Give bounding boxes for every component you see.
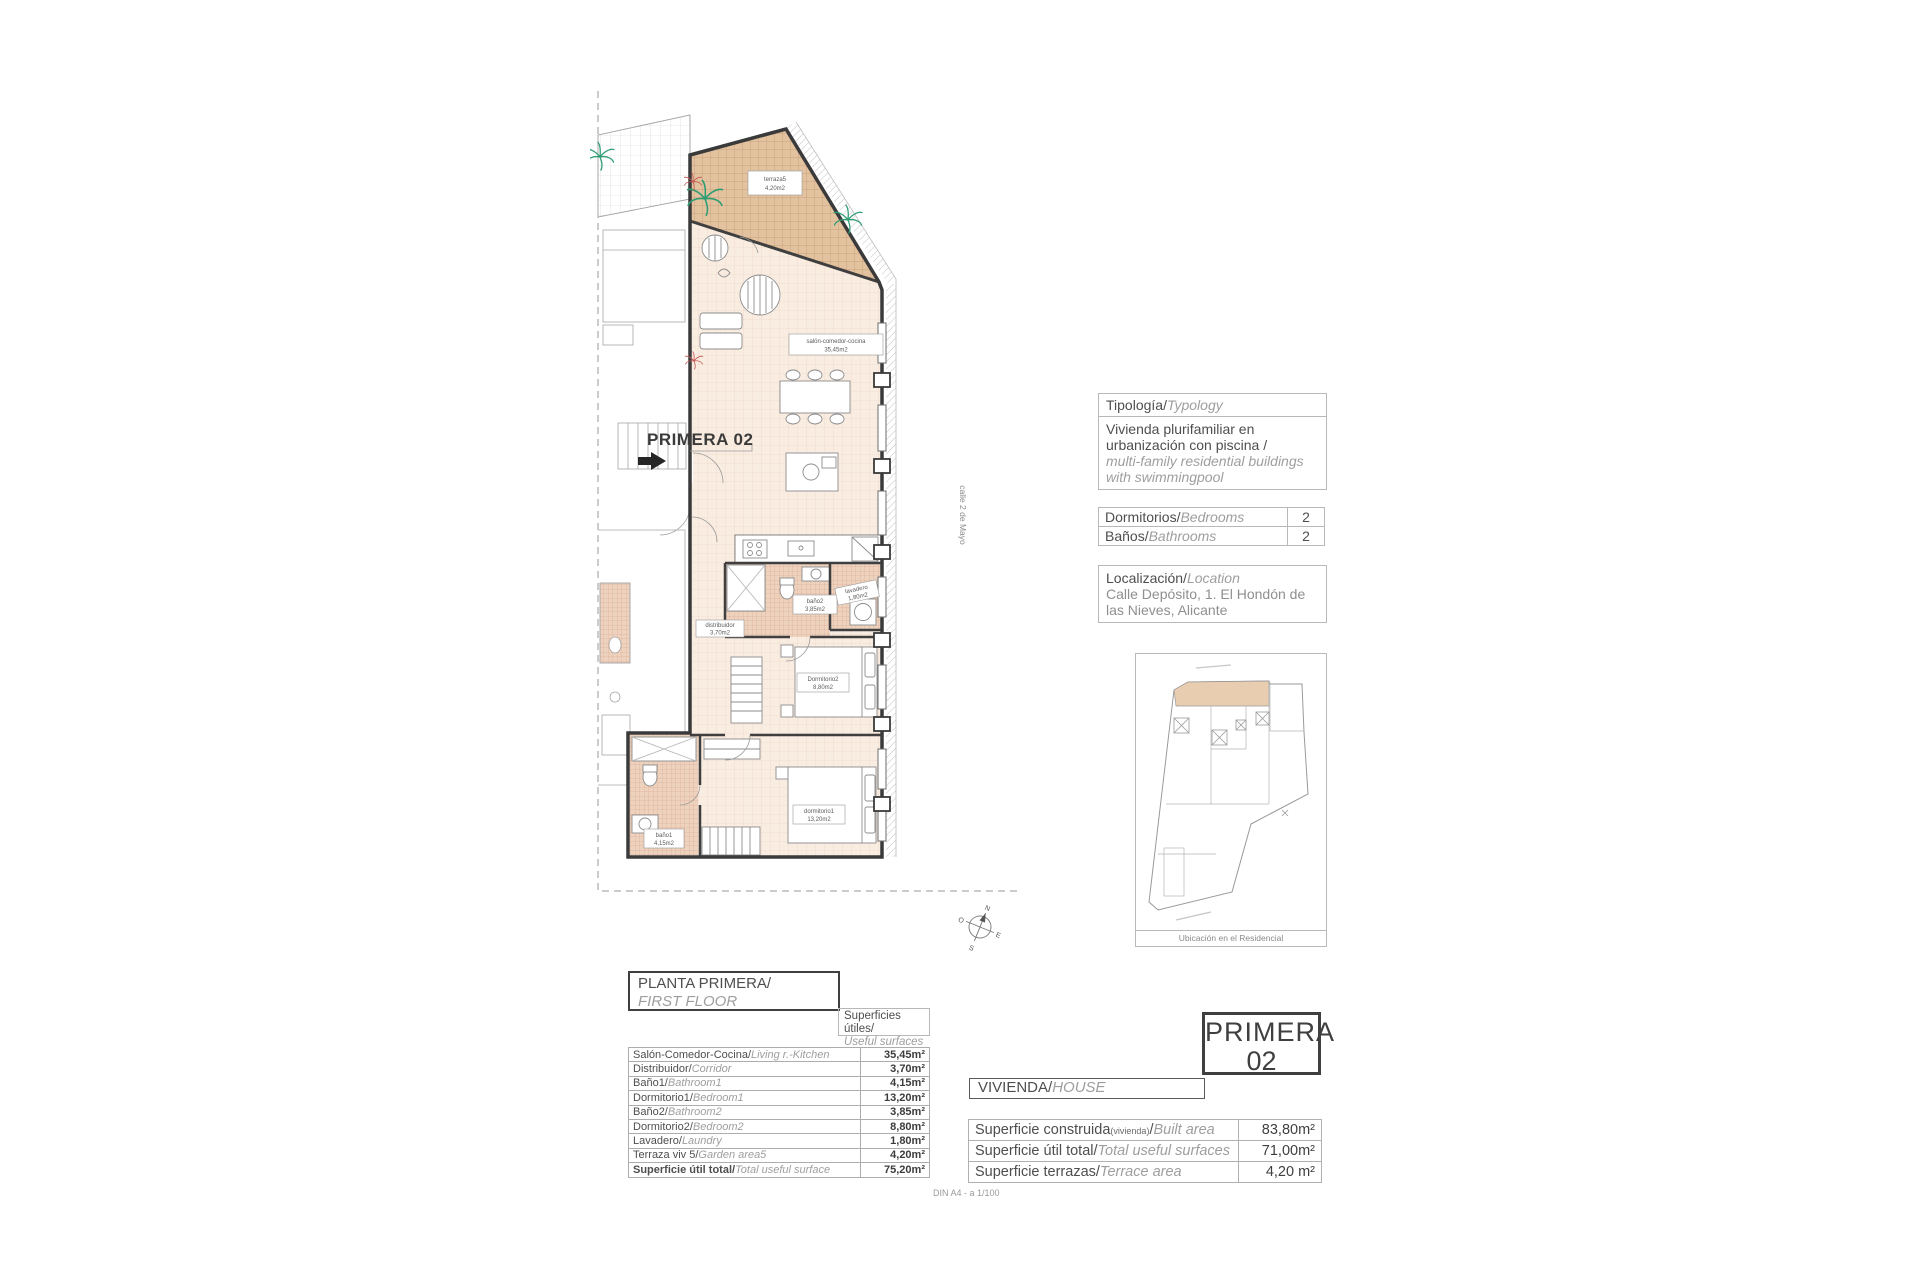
table-row: Superficie terrazas/Terrace area 4,20 m² xyxy=(969,1162,1322,1183)
svg-text:35,45m2: 35,45m2 xyxy=(824,348,848,354)
bathroom2-label: baño2 xyxy=(807,599,824,605)
surface-value: 35,45m² xyxy=(861,1048,930,1062)
location-box: Localización/Location Calle Depósito, 1.… xyxy=(1098,565,1327,623)
bedrooms-count: 2 xyxy=(1288,508,1325,527)
surface-label: Salón-Comedor-Cocina/Living r.-Kitchen xyxy=(629,1048,861,1062)
neighbour-unit xyxy=(598,115,690,785)
typology-body-en: multi-family residential buildings with … xyxy=(1106,453,1304,485)
street-name: calle 2 de Mayo xyxy=(958,485,968,545)
site-location-plan: Ubicación en el Residencial xyxy=(1135,653,1327,947)
table-row: Dormitorio1/Bedroom113,20m² xyxy=(629,1091,930,1105)
surface-label: Lavadero/Laundry xyxy=(629,1134,861,1148)
bedrooms-label: Dormitorios/Bedrooms xyxy=(1099,508,1288,527)
surface-total-label: Superficie útil total/Total useful surfa… xyxy=(629,1163,861,1177)
surface-value: 4,15m² xyxy=(861,1076,930,1090)
bedroom2-label: Dormitorio2 xyxy=(807,677,839,683)
surface-label: Dormitorio1/Bedroom1 xyxy=(629,1091,861,1105)
unit-card-name: PRIMERA xyxy=(1205,1017,1318,1047)
location-address: Calle Depósito, 1. El Hondón de las Niev… xyxy=(1106,586,1305,618)
floor-plan: terraza5 4,20m2 salón-comedor-cocina 35,… xyxy=(590,85,1030,985)
bathrooms-count: 2 xyxy=(1288,527,1325,546)
svg-text:O: O xyxy=(957,917,965,926)
svg-text:4,15m2: 4,15m2 xyxy=(654,841,675,847)
useful-total-label: Superficie útil total/Total useful surfa… xyxy=(969,1141,1239,1162)
svg-text:N: N xyxy=(984,905,991,913)
surface-value: 1,80m² xyxy=(861,1134,930,1148)
corridor-label: distribuidor xyxy=(705,623,734,629)
surface-value: 4,20m² xyxy=(861,1148,930,1162)
svg-text:3,70m2: 3,70m2 xyxy=(710,631,731,637)
surface-total-value: 75,20m² xyxy=(861,1163,930,1177)
terrace-label: terraza5 xyxy=(764,177,787,183)
svg-text:E: E xyxy=(995,932,1002,940)
terrace-area-value: 4,20 m² xyxy=(1239,1162,1322,1183)
location-title: Localización/Location xyxy=(1106,570,1240,586)
table-row: Dormitorios/Bedrooms 2 xyxy=(1099,508,1325,527)
plan-sheet: { "colors":{ "wall":"#3a3a3a","floor":"#… xyxy=(0,0,1920,1280)
floor-name-en: FIRST FLOOR xyxy=(638,993,737,1010)
typology-body-es: Vivienda plurifamiliar en urbanización c… xyxy=(1106,421,1267,453)
table-row: Superficie construida(vivienda)/Built ar… xyxy=(969,1120,1322,1141)
table-row: Salón-Comedor-Cocina/Living r.-Kitchen35… xyxy=(629,1048,930,1062)
surface-label: Baño1/Bathroom1 xyxy=(629,1076,861,1090)
useful-total-value: 71,00m² xyxy=(1239,1141,1322,1162)
bathroom1-label: baño1 xyxy=(656,833,673,839)
floor-header-box: PLANTA PRIMERA/ FIRST FLOOR xyxy=(628,971,840,1011)
surface-value: 3,85m² xyxy=(861,1105,930,1119)
useful-surfaces-table: Salón-Comedor-Cocina/Living r.-Kitchen35… xyxy=(628,1047,930,1178)
site-x-mark xyxy=(1282,810,1288,816)
rooms-count-table: Dormitorios/Bedrooms 2 Baños/Bathrooms 2 xyxy=(1098,507,1325,546)
table-row: Baños/Bathrooms 2 xyxy=(1099,527,1325,546)
surface-label: Terraza viv 5/Garden area5 xyxy=(629,1148,861,1162)
typology-title: Tipología/Typology xyxy=(1099,394,1326,417)
svg-text:13,20m2: 13,20m2 xyxy=(807,817,831,823)
built-area-value: 83,80m² xyxy=(1239,1120,1322,1141)
scale-note: DIN A4 - a 1/100 xyxy=(933,1188,1000,1198)
typology-box: Tipología/Typology Vivienda plurifamilia… xyxy=(1098,393,1327,490)
surface-value: 8,80m² xyxy=(861,1119,930,1133)
bedroom1-label: dormitorio1 xyxy=(804,809,835,815)
site-unit-highlight xyxy=(1174,681,1269,706)
surface-label: Distribuidor/Corridor xyxy=(629,1062,861,1076)
table-row: Baño2/Bathroom23,85m² xyxy=(629,1105,930,1119)
site-plan-caption: Ubicación en el Residencial xyxy=(1136,930,1326,946)
surface-value: 13,20m² xyxy=(861,1091,930,1105)
svg-text:4,20m2: 4,20m2 xyxy=(765,186,786,192)
surface-label: Baño2/Bathroom2 xyxy=(629,1105,861,1119)
table-row: Distribuidor/Corridor3,70m² xyxy=(629,1062,930,1076)
floor-name-es: PLANTA PRIMERA/ xyxy=(638,975,771,992)
useful-surfaces-header: Superficies útiles/ Useful surfaces xyxy=(838,1008,930,1036)
built-area-label: Superficie construida(vivienda)/Built ar… xyxy=(969,1120,1239,1141)
compass-icon: N S E O xyxy=(949,897,1010,960)
bathrooms-label: Baños/Bathrooms xyxy=(1099,527,1288,546)
svg-text:8,80m2: 8,80m2 xyxy=(813,685,834,691)
dwelling-bar: VIVIENDA/HOUSE xyxy=(969,1078,1205,1099)
unit-card: PRIMERA 02 xyxy=(1202,1012,1321,1075)
table-row: Terraza viv 5/Garden area54,20m² xyxy=(629,1148,930,1162)
svg-text:3,85m2: 3,85m2 xyxy=(805,607,826,613)
table-row: Superficie útil total/Total useful surfa… xyxy=(969,1141,1322,1162)
entrance-arrow-icon xyxy=(638,452,666,470)
table-row: Baño1/Bathroom14,15m² xyxy=(629,1076,930,1090)
table-row: Dormitorio2/Bedroom28,80m² xyxy=(629,1119,930,1133)
unit-tag: PRIMERA 02 xyxy=(647,430,753,449)
living-room-label: salón-comedor-cocina xyxy=(806,339,866,345)
table-row: Lavadero/Laundry1,80m² xyxy=(629,1134,930,1148)
svg-text:S: S xyxy=(968,945,975,953)
surface-label: Dormitorio2/Bedroom2 xyxy=(629,1119,861,1133)
unit-card-number: 02 xyxy=(1205,1047,1318,1075)
totals-table: Superficie construida(vivienda)/Built ar… xyxy=(968,1119,1322,1183)
table-row-total: Superficie útil total/Total useful surfa… xyxy=(629,1163,930,1177)
terrace-area-label: Superficie terrazas/Terrace area xyxy=(969,1162,1239,1183)
surface-value: 3,70m² xyxy=(861,1062,930,1076)
